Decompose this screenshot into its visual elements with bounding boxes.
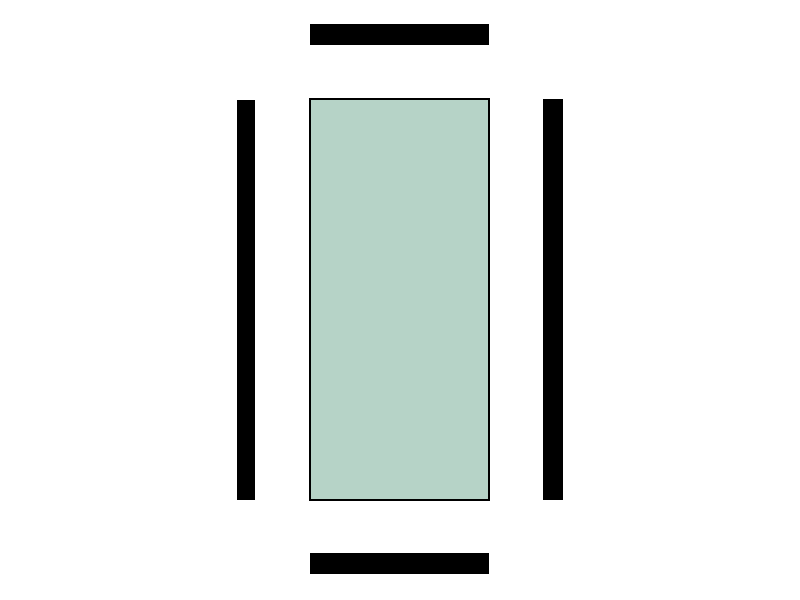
- center-panel: [309, 98, 490, 501]
- right-vertical-bar: [543, 99, 563, 500]
- left-vertical-bar: [237, 100, 255, 500]
- bottom-horizontal-bar: [310, 553, 489, 574]
- top-horizontal-bar: [310, 24, 489, 45]
- diagram-canvas: [0, 0, 800, 600]
